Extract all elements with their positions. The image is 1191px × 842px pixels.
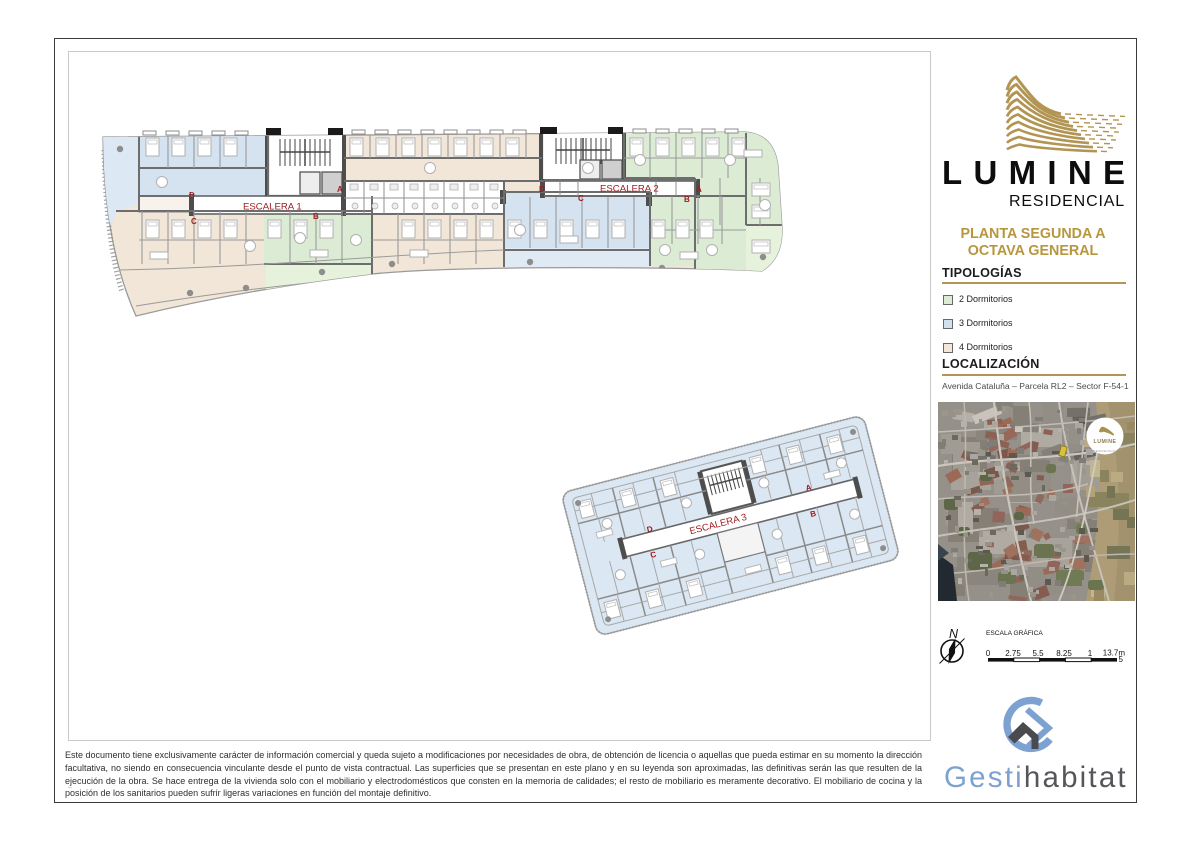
svg-text:B: B [313, 212, 319, 221]
svg-text:C: C [578, 194, 584, 203]
svg-text:ESCALERA 1: ESCALERA 1 [243, 202, 302, 213]
svg-text:N: N [949, 627, 959, 641]
svg-text:ESCALERA 2: ESCALERA 2 [600, 184, 659, 195]
svg-text:D: D [189, 191, 195, 200]
svg-text:5.5: 5.5 [1032, 649, 1044, 658]
svg-text:A: A [337, 185, 343, 194]
svg-text:8.25: 8.25 [1056, 649, 1072, 658]
svg-text:ESCALA GRÁFICA: ESCALA GRÁFICA [986, 628, 1043, 637]
svg-text:LUMINE: LUMINE [1094, 439, 1117, 445]
svg-text:2.75: 2.75 [1005, 649, 1021, 658]
svg-text:RESIDENCIAL: RESIDENCIAL [1093, 449, 1116, 453]
svg-text:5: 5 [1119, 655, 1124, 664]
svg-text:D: D [539, 185, 545, 194]
svg-text:A: A [696, 185, 702, 194]
svg-text:B: B [684, 195, 690, 204]
svg-text:0: 0 [986, 649, 991, 658]
svg-text:1: 1 [1088, 649, 1093, 658]
svg-text:C: C [191, 217, 197, 226]
